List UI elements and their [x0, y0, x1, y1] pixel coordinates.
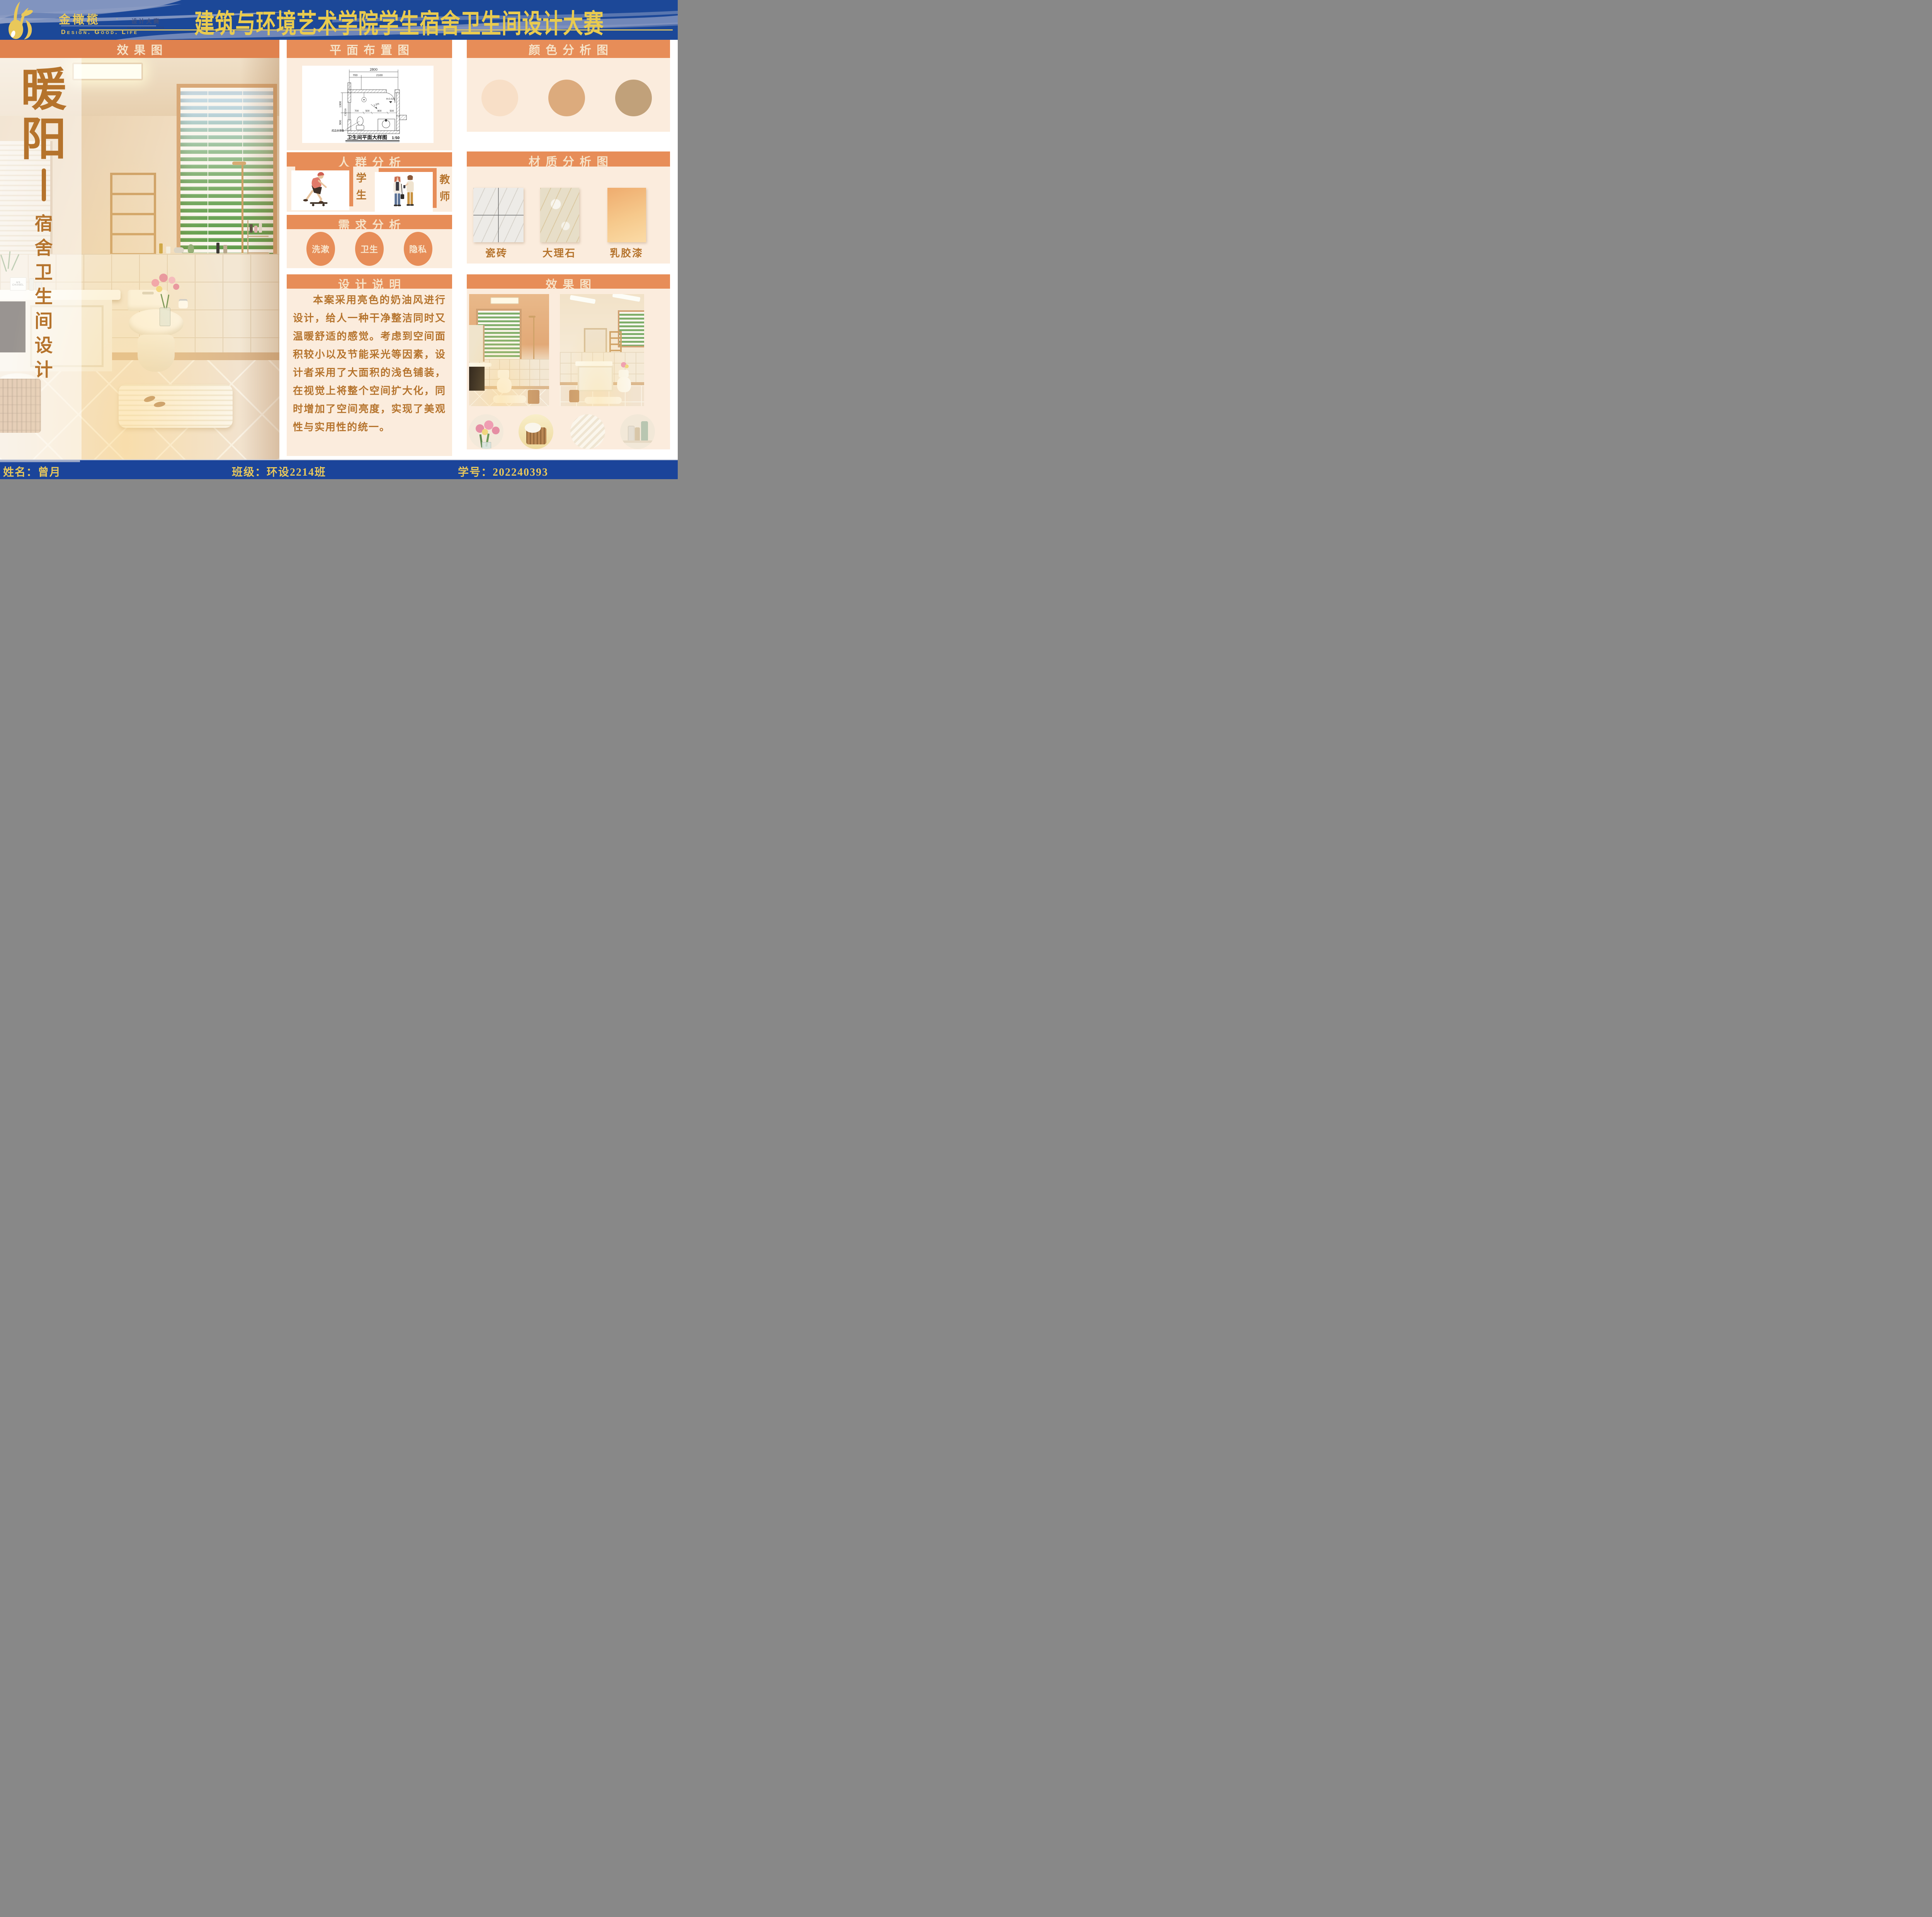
bottle-amber [635, 427, 640, 441]
material-analysis-panel: 瓷砖 大理石 乳胶漆 [467, 167, 670, 264]
top-banner: 金橄榄 · 设计大赛 DESIGN COMPETITION Design. Go… [0, 0, 678, 40]
window-code: C1216 [344, 108, 347, 116]
color-swatch-light [481, 80, 518, 116]
name-label: 姓名： [3, 466, 38, 478]
description-panel: 本案采用亮色的奶油风进行设计，给人一种干净整洁同时又温暖舒适的感觉。考虑到空间面… [287, 289, 452, 456]
teacher-card [375, 172, 433, 212]
detail-circle-basket [519, 414, 553, 449]
dim-total: 2800 [370, 68, 378, 71]
vase [482, 442, 491, 449]
title-char-yang: 阳 [21, 115, 66, 165]
material-swatch-tile [473, 188, 524, 242]
dim-inner-3: 500 [390, 110, 394, 112]
color-analysis-header: 颜色分析图 [467, 40, 670, 58]
color-analysis-panel [467, 58, 670, 132]
id-value: 202240393 [493, 466, 548, 478]
subtitle-char: 舍 [35, 236, 53, 261]
material-label-marble: 大理石 [543, 245, 576, 260]
subtitle-char: 间 [35, 310, 53, 334]
detail-circle-flowers [469, 414, 503, 449]
dim-inner-0: 700 [355, 110, 359, 112]
wall-shadow [233, 58, 279, 459]
color-analysis-header-label: 颜色分析图 [523, 41, 614, 58]
rose-yellow [482, 429, 488, 435]
subtitle-char: 卫 [35, 261, 53, 285]
rose [492, 427, 500, 434]
teachers-illustration [375, 172, 433, 212]
footer-class: 班级：环设2214班 [232, 464, 326, 479]
toilet-symbol [356, 117, 364, 130]
floor-plan-panel: 2800 700 2100 1300 900 [287, 58, 452, 150]
brand-subtitle: 设计大赛 [131, 17, 161, 25]
towel [525, 423, 541, 433]
material-swatch-marble [540, 188, 579, 242]
crowd-panel: 学生 [287, 167, 452, 212]
student-card [291, 170, 349, 210]
title-dash [42, 168, 46, 201]
subtitle-char: 宿 [35, 212, 53, 236]
shelf [620, 441, 655, 443]
color-swatch-dark [615, 80, 652, 116]
dim-b: 2100 [376, 73, 383, 77]
door-level: H-0.020 [386, 98, 395, 100]
render-thumb-vanity-view [560, 294, 644, 406]
window-lines [348, 102, 350, 120]
skateboarder-illustration [291, 170, 349, 210]
brand-separator: · [116, 15, 118, 22]
bottle-clear [628, 426, 634, 442]
name-value: 曾月 [38, 466, 61, 478]
needs-panel: 洗漱 卫生 隐私 [287, 229, 452, 268]
subtitle-char: 设 [35, 334, 53, 358]
material-swatch-paint [607, 188, 646, 242]
title-char-nuan: 暖 [21, 66, 66, 115]
brand-divider [61, 26, 156, 26]
class-label: 班级： [232, 466, 267, 478]
dim-left-a: 1300 [338, 101, 342, 108]
toilet-note: 成品坐便器 [332, 129, 344, 132]
bottle-green [641, 421, 648, 441]
detail-circle-knit [570, 414, 605, 449]
renders-panel [467, 289, 670, 449]
title-subtitle: 宿 舍 卫 生 间 设 计 [35, 212, 53, 383]
left-section-header: 效果图 [0, 40, 279, 58]
poster: 金橄榄 · 设计大赛 DESIGN COMPETITION Design. Go… [0, 0, 678, 479]
left-header-label: 效果图 [112, 41, 168, 58]
top-dimensions [349, 70, 398, 90]
detail-circle-bottles [620, 414, 655, 449]
teacher-label: 教师 [439, 171, 451, 205]
dim-left-b: 900 [338, 120, 342, 125]
need-item-washing: 洗漱 [306, 232, 335, 266]
subtitle-char: 生 [35, 285, 53, 310]
dim-a: 700 [353, 73, 358, 77]
footer-wave-sliver [0, 460, 80, 462]
footer-name: 姓名：曾月 [3, 464, 61, 479]
level-marker [389, 101, 392, 103]
dim-inner-2: 900 [378, 110, 382, 112]
sink-symbol [378, 119, 395, 131]
description-body: 本案采用亮色的奶油风进行设计，给人一种干净整洁同时又温暖舒适的感觉。考虑到空间面… [293, 291, 446, 436]
render-b-glow [560, 294, 644, 406]
student-label-text: 学生 [356, 172, 367, 201]
teacher-label-text: 教师 [440, 174, 450, 202]
brand-name: 金橄榄 [59, 10, 100, 27]
plan-caption: 卫生间平面大样图 [347, 134, 387, 140]
need-item-privacy: 隐私 [404, 232, 432, 266]
class-value: 环设2214班 [267, 466, 326, 478]
render-a-glow [469, 294, 549, 406]
footer-student-id: 学号：202240393 [458, 464, 548, 479]
plan-scale: 1:50 [392, 136, 400, 140]
render-thumb-shower-view [469, 294, 549, 406]
floor-plan-header: 平面布置图 [287, 40, 452, 58]
footer-bar: 姓名：曾月 班级：环设2214班 学号：202240393 [0, 459, 678, 479]
poster-vertical-title: 暖 阳 宿 舍 卫 生 间 设 计 [19, 66, 69, 383]
floor-plan-card: 2800 700 2100 1300 900 [302, 66, 434, 143]
dim-inner-1: 500 [366, 110, 370, 112]
need-item-hygiene: 卫生 [355, 232, 384, 266]
slope-label: 1.5% [373, 102, 380, 107]
id-label: 学号： [458, 466, 493, 478]
color-swatch-mid [548, 80, 585, 116]
floor-plan-header-label: 平面布置图 [324, 41, 415, 58]
competition-title: 建筑与环境艺术学院学生宿舍卫生间设计大赛 [194, 2, 673, 38]
material-label-paint: 乳胶漆 [610, 245, 643, 260]
student-label: 学生 [355, 170, 367, 204]
subtitle-char: 计 [35, 358, 53, 383]
floor-plan-drawing: 2800 700 2100 1300 900 [302, 66, 434, 143]
material-label-tile: 瓷砖 [485, 245, 508, 260]
